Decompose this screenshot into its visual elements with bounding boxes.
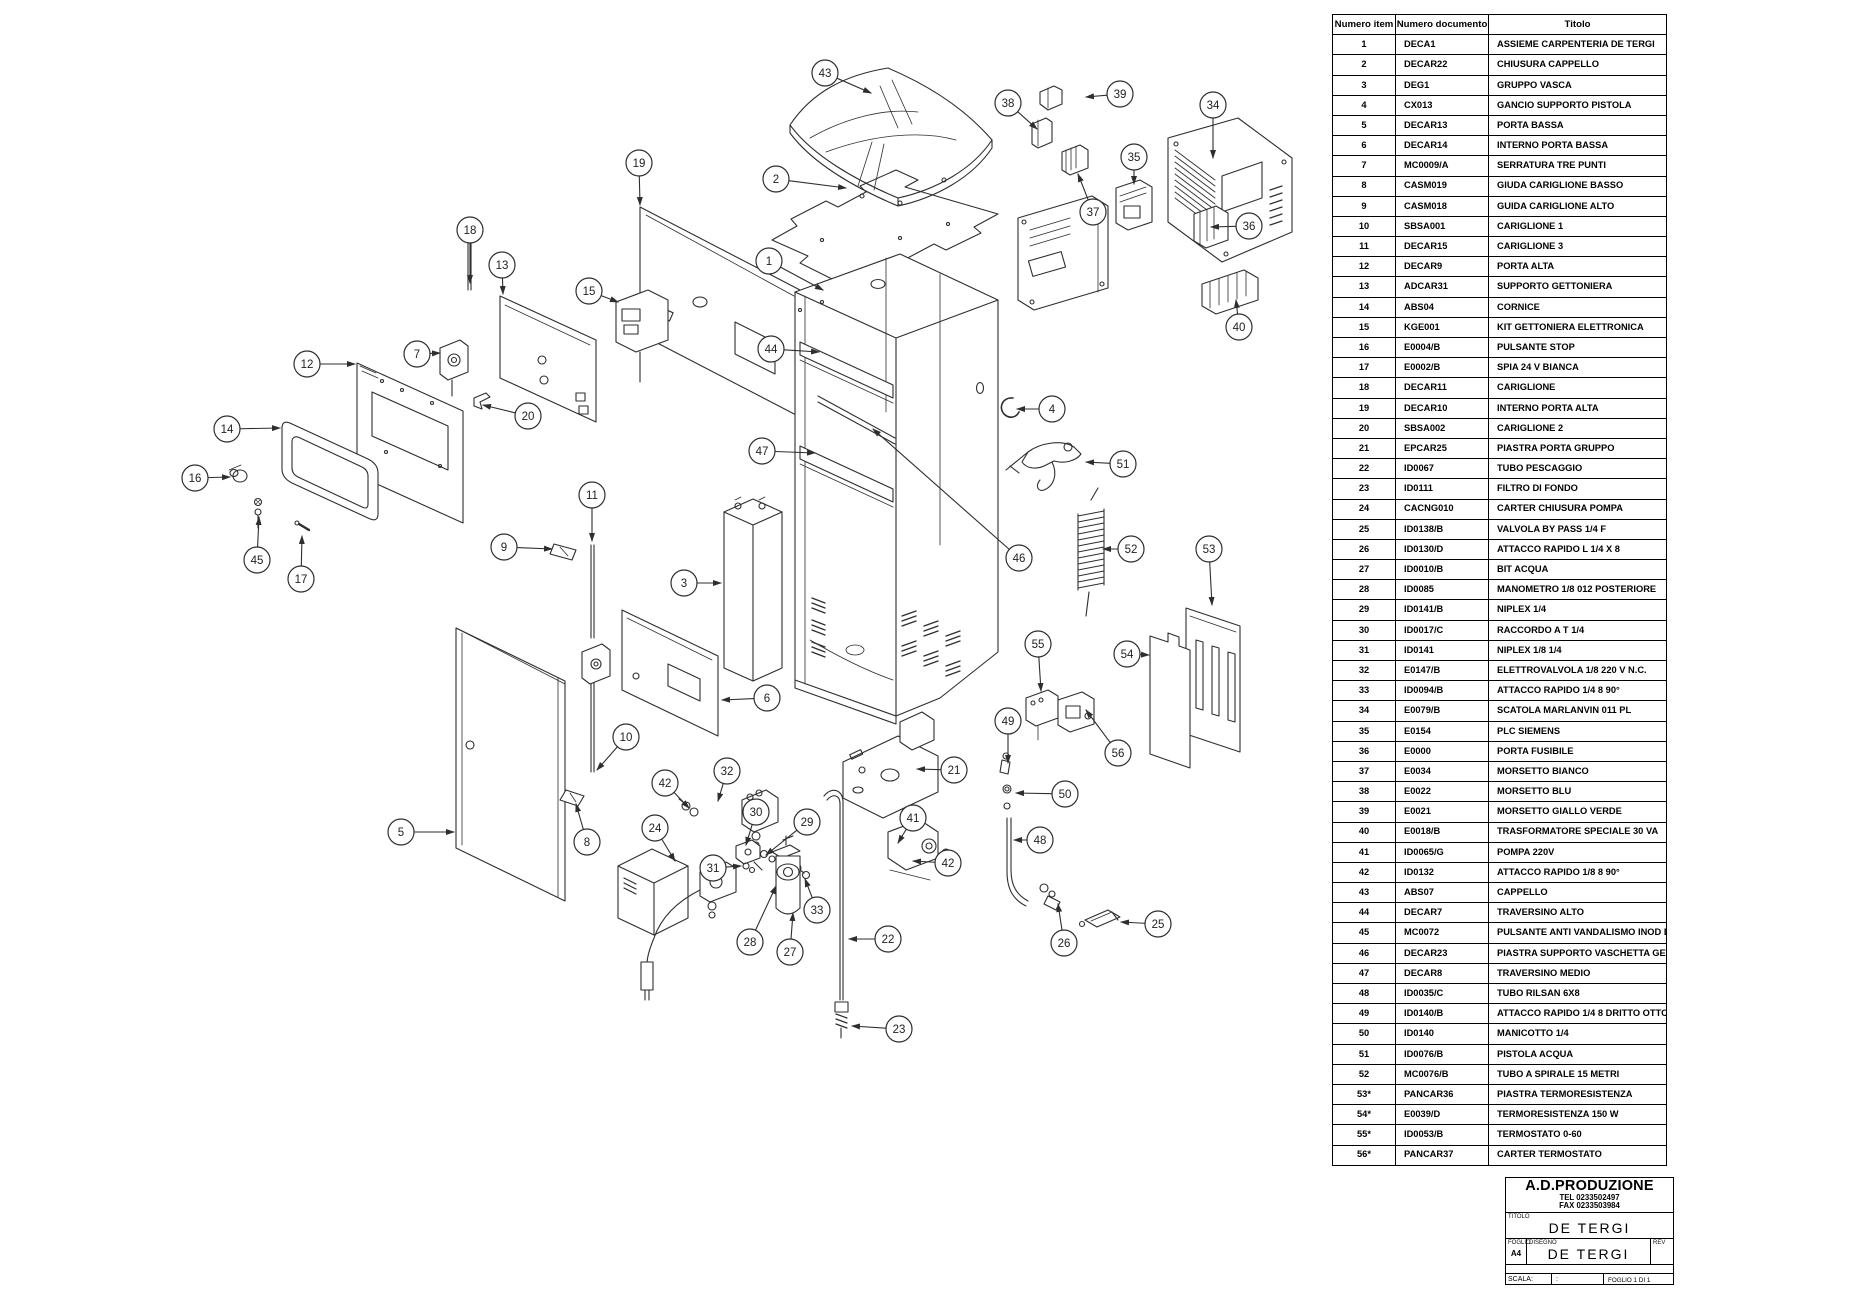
cell-numero-documento: ID0065/G bbox=[1396, 843, 1489, 862]
table-row: 45MC0072PULSANTE ANTI VANDALISMO INOD D … bbox=[1333, 923, 1666, 943]
balloon-number-50: 50 bbox=[1059, 789, 1072, 801]
cell-numero-item: 29 bbox=[1333, 600, 1396, 619]
cell-numero-documento: ID0141/B bbox=[1396, 600, 1489, 619]
balloon-number-34: 34 bbox=[1207, 100, 1220, 112]
balloon-number-25: 25 bbox=[1152, 919, 1165, 931]
table-row: 49ID0140/BATTACCO RAPIDO 1/4 8 DRITTO OT… bbox=[1333, 1004, 1666, 1024]
table-row: 46DECAR23PIASTRA SUPPORTO VASCHETTA GETT… bbox=[1333, 944, 1666, 964]
part-guida-alto bbox=[550, 544, 576, 560]
title-block: A.D.PRODUZIONE TEL 0233502497 FAX 023350… bbox=[1505, 1177, 1674, 1285]
cell-numero-documento: ID0085 bbox=[1396, 580, 1489, 599]
table-row: 4CX013GANCIO SUPPORTO PISTOLA bbox=[1333, 96, 1666, 116]
balloon-number-23: 23 bbox=[893, 1024, 906, 1036]
titolo-value: DE TERGI bbox=[1506, 1220, 1673, 1236]
table-row: 41ID0065/GPOMPA 220V bbox=[1333, 843, 1666, 863]
cell-numero-documento: DECAR9 bbox=[1396, 257, 1489, 276]
cell-numero-documento: E0021 bbox=[1396, 802, 1489, 821]
col-header-numero-documento: Numero documento bbox=[1396, 15, 1489, 34]
rev-label: REV bbox=[1653, 1240, 1665, 1246]
cell-numero-documento: ADCAR31 bbox=[1396, 277, 1489, 296]
cell-numero-item: 14 bbox=[1333, 298, 1396, 317]
cell-numero-item: 21 bbox=[1333, 439, 1396, 458]
balloon-number-6: 6 bbox=[764, 693, 770, 705]
cell-numero-documento: PANCAR37 bbox=[1396, 1146, 1489, 1165]
part-pulsante-stop bbox=[229, 465, 247, 482]
cell-titolo: MANICOTTO 1/4 bbox=[1489, 1024, 1666, 1043]
cell-numero-item: 22 bbox=[1333, 459, 1396, 478]
table-row: 39E0021MORSETTO GIALLO VERDE bbox=[1333, 802, 1666, 822]
cell-numero-documento: DEG1 bbox=[1396, 76, 1489, 95]
cell-numero-documento: CACNG010 bbox=[1396, 500, 1489, 519]
leader-line-26 bbox=[1058, 904, 1062, 930]
cell-numero-item: 37 bbox=[1333, 762, 1396, 781]
table-row: 12DECAR9PORTA ALTA bbox=[1333, 257, 1666, 277]
table-row: 26ID0130/DATTACCO RAPIDO L 1/4 X 8 bbox=[1333, 540, 1666, 560]
balloon-number-15: 15 bbox=[583, 286, 596, 298]
table-row: 3DEG1GRUPPO VASCA bbox=[1333, 76, 1666, 96]
drawing-sheet: 1234567891011121314151617181920212223242… bbox=[0, 0, 1866, 1300]
table-row: 35E0154PLC SIEMENS bbox=[1333, 722, 1666, 742]
balloon-number-55: 55 bbox=[1032, 639, 1045, 651]
table-row: 11DECAR15CARIGLIONE 3 bbox=[1333, 237, 1666, 257]
foglio-disegno-row: FOGLIO A4 DISEGNO DE TERGI REV bbox=[1506, 1239, 1673, 1265]
cell-numero-documento: KGE001 bbox=[1396, 318, 1489, 337]
cell-titolo: GIUDA CARIGLIONE BASSO bbox=[1489, 177, 1666, 196]
part-bit-acqua bbox=[772, 836, 800, 914]
cell-numero-documento: ID0010/B bbox=[1396, 560, 1489, 579]
cell-titolo: PIASTRA SUPPORTO VASCHETTA GETTONI bbox=[1489, 944, 1666, 963]
leader-line-38 bbox=[1018, 112, 1037, 129]
cell-titolo: MORSETTO BLU bbox=[1489, 782, 1666, 801]
cell-numero-documento: DECAR8 bbox=[1396, 964, 1489, 983]
table-row: 37E0034MORSETTO BIANCO bbox=[1333, 762, 1666, 782]
table-row: 42ID0132ATTACCO RAPIDO 1/8 8 90° bbox=[1333, 863, 1666, 883]
table-row: 18DECAR11CARIGLIONE bbox=[1333, 378, 1666, 398]
table-row: 23ID0111FILTRO DI FONDO bbox=[1333, 479, 1666, 499]
cell-titolo: PULSANTE STOP bbox=[1489, 338, 1666, 357]
cell-numero-documento: ID0094/B bbox=[1396, 681, 1489, 700]
balloon-number-14: 14 bbox=[221, 424, 234, 436]
table-row: 24CACNG010CARTER CHIUSURA POMPA bbox=[1333, 500, 1666, 520]
titolo-row: TITOLO DE TERGI bbox=[1506, 1213, 1673, 1239]
cell-titolo: CARIGLIONE bbox=[1489, 378, 1666, 397]
balloon-number-20: 20 bbox=[522, 411, 535, 423]
leader-line-50 bbox=[1016, 793, 1052, 794]
part-scatola-marlanvin bbox=[1168, 118, 1292, 262]
cell-numero-item: 24 bbox=[1333, 500, 1396, 519]
table-row: 27ID0010/BBIT ACQUA bbox=[1333, 560, 1666, 580]
balloon-number-33: 33 bbox=[811, 905, 824, 917]
table-row: 48ID0035/CTUBO RILSAN 6X8 bbox=[1333, 984, 1666, 1004]
cell-titolo: PORTA FUSIBILE bbox=[1489, 742, 1666, 761]
cell-titolo: PORTA ALTA bbox=[1489, 257, 1666, 276]
leader-line-21 bbox=[917, 769, 941, 770]
cell-titolo: TERMORESISTENZA 150 W bbox=[1489, 1105, 1666, 1124]
cell-numero-documento: DECAR11 bbox=[1396, 378, 1489, 397]
cell-numero-item: 30 bbox=[1333, 621, 1396, 640]
cell-numero-item: 7 bbox=[1333, 156, 1396, 175]
cell-titolo: CARIGLIONE 2 bbox=[1489, 419, 1666, 438]
foglio-cell: FOGLIO A4 bbox=[1506, 1239, 1527, 1264]
leader-line-43 bbox=[837, 78, 871, 93]
leader-line-32 bbox=[718, 783, 723, 801]
balloon-number-22: 22 bbox=[882, 934, 895, 946]
cell-titolo: PORTA BASSA bbox=[1489, 116, 1666, 135]
cell-numero-item: 50 bbox=[1333, 1024, 1396, 1043]
company-header: A.D.PRODUZIONE TEL 0233502497 FAX 023350… bbox=[1506, 1178, 1673, 1213]
cell-titolo: TRAVERSINO MEDIO bbox=[1489, 964, 1666, 983]
cell-titolo: PLC SIEMENS bbox=[1489, 722, 1666, 741]
col-header-titolo: Titolo bbox=[1489, 15, 1666, 34]
part-carter-termostato bbox=[1058, 692, 1094, 732]
cell-numero-documento: E0002/B bbox=[1396, 358, 1489, 377]
cell-numero-documento: DECAR13 bbox=[1396, 116, 1489, 135]
leader-line-51 bbox=[1086, 462, 1110, 463]
balloon-number-9: 9 bbox=[501, 542, 507, 554]
leader-line-53 bbox=[1210, 562, 1212, 605]
balloon-number-52: 52 bbox=[1125, 544, 1138, 556]
cell-titolo: CARTER TERMOSTATO bbox=[1489, 1146, 1666, 1165]
cell-titolo: RACCORDO A T 1/4 bbox=[1489, 621, 1666, 640]
table-row: 1DECA1ASSIEME CARPENTERIA DE TERGI bbox=[1333, 35, 1666, 55]
cell-titolo: GRUPPO VASCA bbox=[1489, 76, 1666, 95]
leader-line-25 bbox=[1121, 922, 1145, 923]
table-row: 54*E0039/DTERMORESISTENZA 150 W bbox=[1333, 1105, 1666, 1125]
cell-numero-documento: ID0140/B bbox=[1396, 1004, 1489, 1023]
leader-line-14 bbox=[240, 428, 280, 429]
cell-numero-documento: ID0035/C bbox=[1396, 984, 1489, 1003]
cell-numero-item: 55* bbox=[1333, 1125, 1396, 1144]
balloon-number-8: 8 bbox=[584, 837, 590, 849]
cell-titolo: INTERNO PORTA BASSA bbox=[1489, 136, 1666, 155]
part-piastra-termo bbox=[1186, 608, 1240, 752]
part-porta-bassa bbox=[456, 628, 565, 901]
balloon-number-54: 54 bbox=[1121, 649, 1134, 661]
table-row: 29ID0141/BNIPLEX 1/4 bbox=[1333, 600, 1666, 620]
balloon-number-24: 24 bbox=[649, 823, 662, 835]
cell-numero-item: 16 bbox=[1333, 338, 1396, 357]
part-cappello bbox=[790, 68, 992, 206]
table-row: 28ID0085MANOMETRO 1/8 012 POSTERIORE bbox=[1333, 580, 1666, 600]
cell-numero-item: 52 bbox=[1333, 1065, 1396, 1084]
cell-numero-item: 31 bbox=[1333, 641, 1396, 660]
leader-line-28 bbox=[755, 886, 776, 930]
cell-numero-item: 10 bbox=[1333, 217, 1396, 236]
cell-numero-item: 44 bbox=[1333, 903, 1396, 922]
cell-numero-item: 47 bbox=[1333, 964, 1396, 983]
cell-numero-documento: SBSA002 bbox=[1396, 419, 1489, 438]
cell-numero-documento: DECAR23 bbox=[1396, 944, 1489, 963]
cell-titolo: PULSANTE ANTI VANDALISMO INOD D 19 bbox=[1489, 923, 1666, 942]
cell-numero-item: 25 bbox=[1333, 520, 1396, 539]
cell-numero-documento: ID0067 bbox=[1396, 459, 1489, 478]
part-niplex-31 bbox=[743, 863, 755, 873]
table-row: 36E0000PORTA FUSIBILE bbox=[1333, 742, 1666, 762]
balloon-number-51: 51 bbox=[1117, 459, 1130, 471]
cell-numero-item: 4 bbox=[1333, 96, 1396, 115]
cell-numero-item: 18 bbox=[1333, 378, 1396, 397]
cell-numero-documento: E0039/D bbox=[1396, 1105, 1489, 1124]
balloon-number-7: 7 bbox=[414, 349, 420, 361]
foglio-value: A4 bbox=[1506, 1249, 1526, 1258]
cell-numero-documento: DECAR22 bbox=[1396, 55, 1489, 74]
cell-numero-item: 39 bbox=[1333, 802, 1396, 821]
cell-numero-item: 41 bbox=[1333, 843, 1396, 862]
cell-titolo: CARTER CHIUSURA POMPA bbox=[1489, 500, 1666, 519]
balloon-number-45: 45 bbox=[251, 555, 264, 567]
balloon-number-38: 38 bbox=[1002, 98, 1015, 110]
part-carter-pompa bbox=[618, 849, 688, 935]
balloon-number-11: 11 bbox=[586, 490, 598, 502]
table-row: 21EPCAR25PIASTRA PORTA GRUPPO bbox=[1333, 439, 1666, 459]
balloon-number-16: 16 bbox=[189, 473, 202, 485]
cell-titolo: CARIGLIONE 3 bbox=[1489, 237, 1666, 256]
cell-numero-item: 36 bbox=[1333, 742, 1396, 761]
part-termoresistenza bbox=[1150, 633, 1190, 768]
part-gancio bbox=[1001, 398, 1019, 417]
leader-line-2 bbox=[789, 181, 846, 188]
cell-titolo: TRASFORMATORE SPECIALE 30 VA bbox=[1489, 823, 1666, 842]
cell-numero-documento: SBSA001 bbox=[1396, 217, 1489, 236]
balloon-number-19: 19 bbox=[633, 158, 646, 170]
leader-line-33 bbox=[805, 879, 812, 898]
cell-titolo: POMPA 220V bbox=[1489, 843, 1666, 862]
disegno-value: DE TERGI bbox=[1527, 1246, 1650, 1262]
cell-numero-documento: DECA1 bbox=[1396, 35, 1489, 54]
cell-numero-documento: ID0141 bbox=[1396, 641, 1489, 660]
cell-titolo: FILTRO DI FONDO bbox=[1489, 479, 1666, 498]
part-assieme-carpenteria bbox=[795, 254, 998, 724]
cell-numero-item: 5 bbox=[1333, 116, 1396, 135]
cell-numero-documento: MC0009/A bbox=[1396, 156, 1489, 175]
part-plc-siemens bbox=[1116, 180, 1152, 230]
balloon-number-42: 42 bbox=[659, 778, 672, 790]
cell-titolo: MANOMETRO 1/8 012 POSTERIORE bbox=[1489, 580, 1666, 599]
cell-titolo: ELETTROVALVOLA 1/8 220 V N.C. bbox=[1489, 661, 1666, 680]
cell-titolo: CARIGLIONE 1 bbox=[1489, 217, 1666, 236]
balloon-number-44: 44 bbox=[765, 344, 778, 356]
balloon-number-53: 53 bbox=[1203, 544, 1216, 556]
balloon-number-10: 10 bbox=[620, 732, 633, 744]
cell-numero-documento: ID0138/B bbox=[1396, 520, 1489, 539]
cell-numero-documento: MC0072 bbox=[1396, 923, 1489, 942]
cell-numero-documento: ID0140 bbox=[1396, 1024, 1489, 1043]
cell-numero-documento: E0079/B bbox=[1396, 701, 1489, 720]
leader-line-6 bbox=[722, 699, 754, 700]
cell-numero-item: 45 bbox=[1333, 923, 1396, 942]
cell-numero-documento: DECAR7 bbox=[1396, 903, 1489, 922]
cell-numero-item: 32 bbox=[1333, 661, 1396, 680]
balloon-number-12: 12 bbox=[301, 359, 314, 371]
cell-titolo: GANCIO SUPPORTO PISTOLA bbox=[1489, 96, 1666, 115]
cell-numero-item: 33 bbox=[1333, 681, 1396, 700]
table-row: 5DECAR13PORTA BASSA bbox=[1333, 116, 1666, 136]
cell-numero-item: 26 bbox=[1333, 540, 1396, 559]
cell-titolo: PISTOLA ACQUA bbox=[1489, 1045, 1666, 1064]
cell-numero-item: 42 bbox=[1333, 863, 1396, 882]
company-name: A.D.PRODUZIONE bbox=[1525, 1179, 1653, 1194]
cell-titolo: GUIDA CARIGLIONE ALTO bbox=[1489, 197, 1666, 216]
balloon-number-41: 41 bbox=[907, 813, 920, 825]
cell-numero-documento: EPCAR25 bbox=[1396, 439, 1489, 458]
balloon-number-29: 29 bbox=[801, 817, 814, 829]
balloon-number-4: 4 bbox=[1049, 404, 1056, 416]
cell-numero-item: 20 bbox=[1333, 419, 1396, 438]
col-header-numero-item: Numero item bbox=[1333, 15, 1396, 34]
table-row: 6DECAR14INTERNO PORTA BASSA bbox=[1333, 136, 1666, 156]
cell-titolo: ATTACCO RAPIDO 1/4 8 DRITTO OTTONE bbox=[1489, 1004, 1666, 1023]
leader-line-16 bbox=[208, 477, 230, 478]
cell-numero-item: 12 bbox=[1333, 257, 1396, 276]
table-row: 47DECAR8TRAVERSINO MEDIO bbox=[1333, 964, 1666, 984]
cell-numero-item: 6 bbox=[1333, 136, 1396, 155]
cell-numero-documento: E0022 bbox=[1396, 782, 1489, 801]
parts-list-table: Numero item Numero documento Titolo 1DEC… bbox=[1332, 14, 1667, 1166]
balloon-number-37: 37 bbox=[1087, 207, 1100, 219]
cell-titolo: SCATOLA MARLANVIN 011 PL bbox=[1489, 701, 1666, 720]
cell-numero-item: 2 bbox=[1333, 55, 1396, 74]
table-row: 55*ID0053/BTERMOSTATO 0-60 bbox=[1333, 1125, 1666, 1145]
leader-line-8 bbox=[576, 804, 583, 830]
cell-numero-documento: DECAR15 bbox=[1396, 237, 1489, 256]
cell-numero-documento: E0147/B bbox=[1396, 661, 1489, 680]
balloon-number-31: 31 bbox=[707, 863, 720, 875]
part-serratura bbox=[440, 236, 471, 396]
leader-line-23 bbox=[852, 1026, 886, 1028]
cell-numero-documento: ID0076/B bbox=[1396, 1045, 1489, 1064]
part-tubo-spirale bbox=[1078, 488, 1104, 616]
part-piastra-porta-gruppo bbox=[843, 712, 938, 818]
table-row: 53*PANCAR36PIASTRA TERMORESISTENZA bbox=[1333, 1085, 1666, 1105]
cell-numero-item: 53* bbox=[1333, 1085, 1396, 1104]
cell-numero-documento: CX013 bbox=[1396, 96, 1489, 115]
cell-numero-item: 54* bbox=[1333, 1105, 1396, 1124]
leader-line-17 bbox=[301, 536, 302, 566]
part-termostato bbox=[1026, 690, 1058, 740]
cell-titolo: TERMOSTATO 0-60 bbox=[1489, 1125, 1666, 1144]
balloon-number-27: 27 bbox=[784, 947, 797, 959]
part-spia bbox=[295, 521, 309, 530]
cell-numero-documento: ABS07 bbox=[1396, 883, 1489, 902]
table-row: 32E0147/BELETTROVALVOLA 1/8 220 V N.C. bbox=[1333, 661, 1666, 681]
part-tubo-rilsan bbox=[1007, 818, 1028, 906]
cell-titolo: TUBO A SPIRALE 15 METRI bbox=[1489, 1065, 1666, 1084]
empty-row bbox=[1506, 1265, 1673, 1274]
cell-titolo: ATTACCO RAPIDO 1/8 8 90° bbox=[1489, 863, 1666, 882]
table-row: 7MC0009/ASERRATURA TRE PUNTI bbox=[1333, 156, 1666, 176]
cell-titolo: SUPPORTO GETTONIERA bbox=[1489, 277, 1666, 296]
balloon-number-39: 39 bbox=[1114, 89, 1127, 101]
cell-numero-item: 56* bbox=[1333, 1146, 1396, 1165]
table-row: 56*PANCAR37CARTER TERMOSTATO bbox=[1333, 1146, 1666, 1165]
cell-titolo: PIASTRA PORTA GRUPPO bbox=[1489, 439, 1666, 458]
cell-numero-documento: CASM018 bbox=[1396, 197, 1489, 216]
table-row: 16E0004/BPULSANTE STOP bbox=[1333, 338, 1666, 358]
cell-numero-item: 8 bbox=[1333, 177, 1396, 196]
company-fax: FAX 0233503984 bbox=[1559, 1202, 1620, 1211]
balloon-number-43: 43 bbox=[819, 68, 832, 80]
cell-numero-item: 15 bbox=[1333, 318, 1396, 337]
balloon-number-26: 26 bbox=[1058, 938, 1071, 950]
table-row: 40E0018/BTRASFORMATORE SPECIALE 30 VA bbox=[1333, 823, 1666, 843]
balloon-number-5: 5 bbox=[398, 827, 404, 839]
cell-numero-documento: ABS04 bbox=[1396, 298, 1489, 317]
part-viti-45 bbox=[255, 499, 262, 529]
cell-numero-documento: ID0130/D bbox=[1396, 540, 1489, 559]
cell-numero-item: 11 bbox=[1333, 237, 1396, 256]
scala-label: SCALA: bbox=[1506, 1274, 1552, 1284]
cell-numero-item: 9 bbox=[1333, 197, 1396, 216]
cell-titolo: CAPPELLO bbox=[1489, 883, 1666, 902]
balloon-number-35: 35 bbox=[1128, 152, 1141, 164]
cell-numero-item: 35 bbox=[1333, 722, 1396, 741]
cell-titolo: MORSETTO BIANCO bbox=[1489, 762, 1666, 781]
part-attacco-26 bbox=[1040, 884, 1060, 910]
cell-numero-item: 23 bbox=[1333, 479, 1396, 498]
part-morsetto-bianco bbox=[1062, 145, 1088, 175]
part-pistola bbox=[1006, 443, 1081, 491]
sheet-number: FOGLIO 1 DI 1 bbox=[1604, 1274, 1673, 1284]
part-kit-gettoniera bbox=[616, 290, 668, 382]
cell-numero-documento: DECAR14 bbox=[1396, 136, 1489, 155]
cell-numero-documento: E0000 bbox=[1396, 742, 1489, 761]
cell-numero-item: 38 bbox=[1333, 782, 1396, 801]
cell-titolo: TUBO RILSAN 6X8 bbox=[1489, 984, 1666, 1003]
cell-titolo: ASSIEME CARPENTERIA DE TERGI bbox=[1489, 35, 1666, 54]
part-manicotto-50 bbox=[1003, 785, 1011, 809]
part-morsetto-blu bbox=[1032, 118, 1052, 148]
cell-titolo: VALVOLA BY PASS 1/4 F bbox=[1489, 520, 1666, 539]
balloon-number-46: 46 bbox=[1013, 553, 1026, 565]
table-row: 19DECAR10INTERNO PORTA ALTA bbox=[1333, 399, 1666, 419]
table-row: 50ID0140MANICOTTO 1/4 bbox=[1333, 1024, 1666, 1044]
exploded-view-diagram: 1234567891011121314151617181920212223242… bbox=[0, 0, 1330, 1300]
table-row: 13ADCAR31SUPPORTO GETTONIERA bbox=[1333, 277, 1666, 297]
cell-numero-documento: E0034 bbox=[1396, 762, 1489, 781]
leader-line-36 bbox=[1211, 226, 1236, 227]
balloon-number-2: 2 bbox=[773, 174, 779, 186]
cell-titolo: NIPLEX 1/4 bbox=[1489, 600, 1666, 619]
table-row: 52MC0076/BTUBO A SPIRALE 15 METRI bbox=[1333, 1065, 1666, 1085]
part-interno-porta-bassa bbox=[622, 610, 718, 736]
table-row: 15KGE001KIT GETTONIERA ELETTRONICA bbox=[1333, 318, 1666, 338]
balloon-number-36: 36 bbox=[1243, 221, 1256, 233]
cell-numero-documento: DECAR10 bbox=[1396, 399, 1489, 418]
table-row: 8CASM019GIUDA CARIGLIONE BASSO bbox=[1333, 177, 1666, 197]
rev-cell: REV bbox=[1651, 1239, 1673, 1264]
cell-numero-item: 40 bbox=[1333, 823, 1396, 842]
balloon-number-21: 21 bbox=[948, 765, 961, 777]
table-row: 2DECAR22CHIUSURA CAPPELLO bbox=[1333, 55, 1666, 75]
cell-numero-item: 34 bbox=[1333, 701, 1396, 720]
leader-line-55 bbox=[1039, 657, 1041, 691]
cell-titolo: PIASTRA TERMORESISTENZA bbox=[1489, 1085, 1666, 1104]
table-row: 14ABS04CORNICE bbox=[1333, 298, 1666, 318]
cell-numero-item: 28 bbox=[1333, 580, 1396, 599]
balloon-number-13: 13 bbox=[496, 260, 509, 272]
table-row: 51ID0076/BPISTOLA ACQUA bbox=[1333, 1045, 1666, 1065]
scala-row: SCALA: : FOGLIO 1 DI 1 bbox=[1506, 1274, 1673, 1284]
cell-titolo: SERRATURA TRE PUNTI bbox=[1489, 156, 1666, 175]
cell-numero-documento: E0154 bbox=[1396, 722, 1489, 741]
balloon-number-56: 56 bbox=[1112, 748, 1125, 760]
balloon-number-28: 28 bbox=[744, 937, 757, 949]
table-row: 38E0022MORSETTO BLU bbox=[1333, 782, 1666, 802]
cell-titolo: MORSETTO GIALLO VERDE bbox=[1489, 802, 1666, 821]
balloon-number-30: 30 bbox=[750, 807, 763, 819]
table-row: 34E0079/BSCATOLA MARLANVIN 011 PL bbox=[1333, 701, 1666, 721]
balloon-number-42: 42 bbox=[942, 858, 955, 870]
